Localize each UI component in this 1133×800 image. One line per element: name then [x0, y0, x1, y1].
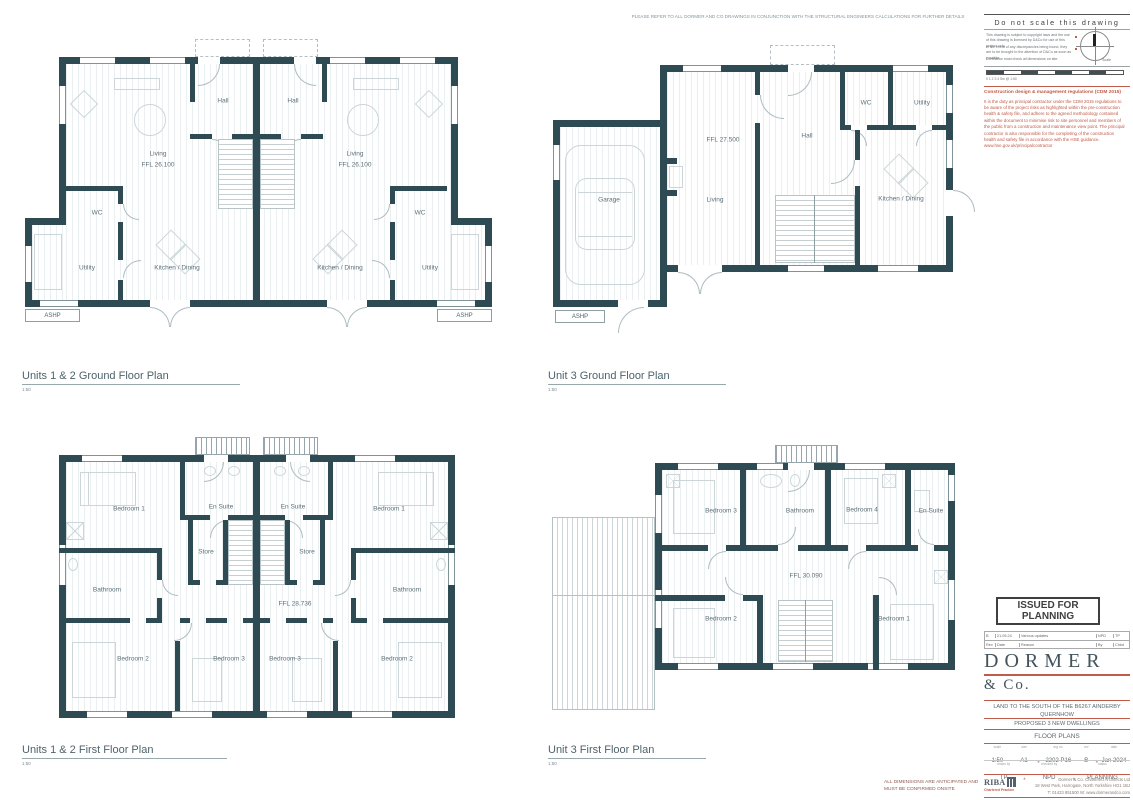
wall	[118, 280, 123, 300]
revision-table: B 21.05.24 Various updates NPD TP Rev Da…	[984, 631, 1130, 649]
north-needle	[1093, 34, 1096, 46]
wall	[59, 618, 130, 623]
date-label: date	[1098, 745, 1130, 749]
door-arc	[678, 272, 700, 294]
ashp-label: ASHP	[44, 313, 60, 319]
plan-scale: 1:50	[22, 761, 31, 766]
room-label-kitchen: Kitchen / Dining	[154, 265, 200, 272]
fireplace-wall	[667, 190, 677, 196]
stairs	[260, 139, 295, 209]
wall	[146, 618, 162, 623]
window	[946, 140, 953, 168]
window	[485, 246, 492, 282]
window	[87, 711, 127, 718]
plan-units12-first: Bedroom 1 En Suite En Suite Bedroom 1 St…	[22, 430, 492, 730]
door-arc	[150, 307, 170, 327]
plan-units12-ground: Hall Hall Living FFL 26.100 Living FFL 2…	[22, 38, 492, 328]
wall	[351, 548, 356, 580]
logo-rule	[984, 674, 1130, 676]
wall	[328, 455, 333, 515]
room-label-bathroom: Bathroom	[93, 587, 121, 594]
date-cell: 21.05.24	[996, 634, 1020, 638]
bed	[192, 658, 222, 702]
ashp-label: ASHP	[456, 313, 472, 319]
party-wall	[253, 57, 260, 307]
room-label-wc: WC	[415, 210, 426, 217]
room-label-bedroom4: Bedroom 4	[846, 507, 878, 514]
wall	[655, 595, 725, 601]
sofa	[353, 78, 399, 90]
practice-address: Dormer & Co. Chartered Architects Ltd 18…	[1035, 777, 1130, 796]
wall	[390, 222, 395, 260]
wall	[260, 618, 270, 623]
wall	[188, 520, 193, 585]
room-label-utility: Utility	[422, 265, 438, 272]
dimensions-note: Contractor must check all dimensions on …	[986, 57, 1072, 62]
balcony-railing	[263, 437, 318, 455]
stairs	[775, 195, 855, 263]
window	[788, 265, 824, 272]
accent-rule	[984, 718, 1130, 719]
drg-label: drg no.	[1040, 745, 1077, 749]
room-label-bedroom1: Bedroom 1	[373, 506, 405, 513]
window	[150, 57, 185, 64]
checked-label: checked by	[1026, 762, 1073, 766]
door-arc	[170, 307, 190, 327]
bed-pillow-line	[88, 472, 89, 506]
balcony-railing	[775, 445, 838, 463]
room-label-utility: Utility	[79, 265, 95, 272]
wall	[206, 618, 227, 623]
room-label-bedroom3: Bedroom 3	[269, 656, 301, 663]
window	[655, 495, 662, 533]
proposal-title: PROPOSED 3 NEW DWELLINGS	[987, 721, 1127, 727]
window	[845, 463, 885, 470]
window	[267, 711, 307, 718]
wall	[383, 618, 455, 623]
roof-divider	[552, 595, 655, 596]
window	[946, 85, 953, 113]
room-label-store: Store	[198, 549, 214, 556]
plan-title: Unit 3 Ground Floor Plan	[548, 370, 726, 385]
wall	[175, 641, 180, 711]
bed	[292, 658, 322, 702]
wall	[301, 134, 323, 139]
accent-rule	[984, 797, 1130, 798]
wall	[216, 580, 228, 585]
revision-header-row: Rev Date Reason By Chkd	[985, 641, 1129, 648]
wall	[855, 130, 860, 160]
window	[893, 65, 928, 72]
wall	[118, 186, 123, 204]
wall	[553, 120, 660, 127]
do-not-scale-title: Do not scale this drawing	[984, 18, 1130, 27]
plan-scale: 1:50	[548, 387, 557, 392]
wall	[873, 595, 879, 670]
window	[172, 711, 212, 718]
accent-rule	[984, 774, 1130, 775]
status-label: status	[1075, 762, 1130, 766]
wardrobe	[666, 474, 680, 488]
wall	[313, 580, 325, 585]
rev-head: Rev	[985, 643, 996, 647]
wall	[757, 600, 763, 670]
window	[40, 300, 78, 307]
do-not-scale-box: Do not scale this drawing This drawing i…	[984, 14, 1130, 88]
wall	[755, 123, 760, 272]
car-windscreen	[578, 192, 632, 193]
window	[355, 455, 395, 462]
chkd-head: Chkd	[1114, 643, 1129, 647]
rev-cell: B	[985, 634, 996, 638]
door-opening	[788, 463, 814, 470]
title-block-column: Do not scale this drawing This drawing i…	[984, 0, 1130, 800]
rule	[984, 14, 1130, 15]
wall	[59, 57, 66, 225]
door-opening	[327, 300, 367, 307]
room-label-hall: Hall	[217, 98, 228, 105]
wall	[59, 455, 66, 718]
canopy-outline	[770, 45, 835, 65]
room-label-hall: Hall	[287, 98, 298, 105]
wall	[303, 515, 333, 520]
door-opening	[618, 300, 648, 307]
window	[437, 300, 475, 307]
wall	[840, 65, 845, 130]
firm-address: 18 West Park, Harrogate, North Yorkshire…	[1035, 783, 1130, 789]
toilet	[68, 558, 78, 571]
cdm-regulations: Construction design & management regulat…	[984, 90, 1127, 150]
window	[683, 65, 721, 72]
scale-bar-caption: 0 1 2 3 4 5m @ 1:50	[986, 77, 1017, 81]
room-label-ensuite: En Suite	[281, 504, 306, 511]
room-label-bedroom1: Bedroom 1	[113, 506, 145, 513]
note-bullet	[1075, 36, 1077, 38]
issued-for-planning-label: ISSUED FOR PLANNING	[1003, 600, 1093, 623]
room-label-bathroom: Bathroom	[393, 587, 421, 594]
wall	[118, 222, 123, 260]
reason-cell: Various updates	[1020, 634, 1097, 638]
wall	[180, 455, 185, 515]
wall	[726, 545, 778, 551]
riba-block: RIBA Chartered Practice	[984, 777, 1016, 796]
room-label-wc: WC	[92, 210, 103, 217]
wall	[390, 186, 395, 204]
plan-title: Units 1 & 2 Ground Floor Plan	[22, 370, 240, 385]
window	[757, 463, 783, 470]
wardrobe	[934, 570, 948, 584]
window	[678, 663, 718, 670]
wall	[190, 57, 195, 102]
door-arc	[618, 307, 644, 333]
logo-line2: & Co.	[984, 677, 1130, 694]
issued-for-planning-stamp: ISSUED FOR PLANNING	[996, 597, 1100, 625]
wall	[243, 618, 253, 623]
door-opening	[198, 57, 220, 64]
accent-rule	[984, 729, 1130, 730]
revision-row: B 21.05.24 Various updates NPD TP	[985, 632, 1129, 641]
room-label-kitchen: Kitchen / Dining	[317, 265, 363, 272]
logo-line1: DORMER	[984, 650, 1130, 673]
wall	[351, 618, 367, 623]
ashp-label: ASHP	[572, 314, 588, 320]
door-opening	[150, 300, 190, 307]
firm-contact: T: 01423 851500 W: www.dormerandco.com	[1035, 790, 1130, 796]
wall	[660, 272, 667, 307]
ffl-label: FFL 26.100	[141, 162, 174, 169]
stair-divider	[805, 600, 806, 662]
room-label-living: Living	[150, 151, 167, 158]
room-label-utility: Utility	[914, 100, 930, 107]
room-label-bedroom2: Bedroom 2	[381, 656, 413, 663]
wall	[286, 618, 307, 623]
utility-counter	[34, 234, 62, 290]
size-label: size	[1011, 745, 1038, 749]
door-opening	[294, 57, 316, 64]
room-label-bedroom2: Bedroom 2	[705, 616, 737, 623]
room-label-bedroom1: Bedroom 1	[878, 616, 910, 623]
room-label-garage: Garage	[598, 197, 620, 204]
plan-title: Units 1 & 2 First Floor Plan	[22, 744, 227, 759]
bath	[760, 474, 782, 488]
north-crosshair-v	[1095, 27, 1096, 65]
wall	[322, 57, 327, 102]
room-label-store: Store	[299, 549, 315, 556]
room-label-living: Living	[707, 197, 724, 204]
car-rear-window	[578, 236, 632, 237]
wall	[740, 463, 746, 551]
bed	[398, 642, 442, 698]
scale-bar	[986, 70, 1124, 75]
wall	[188, 580, 200, 585]
wall	[391, 186, 447, 191]
wardrobe	[430, 522, 448, 540]
wall	[157, 548, 162, 580]
door-opening	[788, 65, 814, 72]
table-round	[134, 104, 166, 136]
wall	[320, 520, 325, 585]
fireplace-wall	[667, 158, 677, 164]
basin	[204, 466, 216, 476]
window	[352, 711, 392, 718]
wall	[905, 463, 911, 551]
wardrobe	[66, 522, 84, 540]
ffl-label: FFL 26.100	[338, 162, 371, 169]
room-label-bedroom2: Bedroom 2	[117, 656, 149, 663]
window	[878, 265, 918, 272]
wall	[798, 545, 848, 551]
date-head: Date	[996, 643, 1020, 647]
scale-label: scale	[984, 745, 1011, 749]
by-head: By	[1097, 643, 1114, 647]
wall	[934, 545, 955, 551]
window	[59, 86, 66, 124]
stairs	[218, 139, 253, 209]
wall	[285, 580, 297, 585]
wall	[285, 520, 290, 585]
balcony-railing	[195, 437, 250, 455]
drawing-title: FLOOR PLANS	[987, 733, 1127, 740]
door-arc	[953, 190, 975, 212]
wall	[390, 280, 395, 300]
rule	[984, 760, 1130, 761]
note-bullet	[1075, 48, 1077, 50]
wall	[755, 65, 760, 95]
wall	[855, 186, 860, 272]
wall	[66, 186, 122, 191]
wall	[333, 641, 338, 711]
project-title: LAND TO THE SOUTH OF THE B6267 AINDERBY …	[987, 703, 1127, 719]
ashp-tag: ASHP	[25, 309, 80, 322]
drawn-label: drawn by	[984, 762, 1023, 766]
wall	[180, 515, 210, 520]
plan-unit3-ground: Garage FFL 27.500 Living Hall WC Utility…	[548, 40, 978, 335]
window	[400, 57, 435, 64]
wall	[655, 545, 708, 551]
room-label-wc: WC	[861, 100, 872, 107]
plan-unit3-first: Bedroom 3 Bathroom Bedroom 4 En Suite FF…	[548, 440, 978, 740]
plan-title: Unit 3 First Floor Plan	[548, 744, 706, 759]
canopy-outline	[195, 39, 250, 57]
basin	[274, 466, 286, 476]
door-arc	[327, 307, 347, 327]
ffl-label: FFL 30.090	[789, 573, 822, 580]
door-opening	[678, 265, 722, 272]
scale-word: Scale	[1102, 58, 1111, 63]
bed	[890, 604, 934, 660]
riba-sub-label: Chartered Practice	[984, 788, 1016, 792]
riba-label: RIBA	[984, 777, 1005, 787]
window	[80, 57, 115, 64]
rule	[984, 29, 1130, 30]
door-opening	[946, 190, 953, 216]
wall	[660, 65, 667, 272]
table-round	[347, 104, 379, 136]
room-label-ensuite: En Suite	[209, 504, 234, 511]
flat-roof-hatch	[552, 517, 655, 710]
bed-pillow-line	[426, 472, 427, 506]
by-cell: NPD	[1097, 634, 1114, 638]
wall	[825, 463, 831, 551]
wall	[451, 57, 458, 225]
stove	[669, 166, 683, 188]
cdm-title: Construction design & management regulat…	[984, 90, 1127, 97]
window	[451, 86, 458, 124]
window	[82, 455, 122, 462]
basin	[298, 466, 310, 476]
wall	[888, 65, 893, 130]
room-label-hall: Hall	[801, 133, 812, 140]
canopy-outline	[263, 39, 318, 57]
car-cabin	[575, 178, 635, 250]
bed	[72, 642, 116, 698]
bed	[844, 478, 878, 524]
stairs	[228, 520, 253, 585]
window	[948, 580, 955, 620]
plan-scale: 1:50	[22, 387, 31, 392]
rev-label: rev	[1077, 745, 1096, 749]
accent-rule	[984, 86, 1130, 87]
wall	[351, 548, 455, 553]
dimensions-warning: ALL DIMENSIONS ARE ANTICIPATED AND MUST …	[884, 779, 982, 793]
room-label-bathroom: Bathroom	[786, 508, 814, 515]
window	[948, 475, 955, 501]
window	[773, 663, 813, 670]
ashp-tag: ASHP	[437, 309, 492, 322]
window	[25, 246, 32, 282]
ffl-label: FFL 28.736	[278, 601, 311, 608]
wardrobe	[882, 474, 896, 488]
room-label-living: Living	[347, 151, 364, 158]
cdm-body: It is the duty as principal contractor u…	[984, 99, 1127, 150]
door-opening	[204, 455, 228, 462]
utility-counter	[451, 234, 479, 290]
ashp-tag: ASHP	[555, 310, 605, 323]
window	[330, 57, 365, 64]
toilet	[790, 474, 800, 487]
toilet	[436, 558, 446, 571]
room-label-ensuite: En Suite	[919, 508, 944, 515]
door-arc	[700, 272, 722, 294]
wall	[59, 548, 162, 553]
door-arc	[347, 307, 367, 327]
party-wall	[253, 455, 260, 718]
room-label-kitchen: Kitchen / Dining	[878, 196, 924, 203]
practice-row: RIBA Chartered Practice Dormer & Co. Cha…	[984, 777, 1130, 796]
reason-head: Reason	[1020, 643, 1097, 647]
plan-scale: 1:50	[548, 761, 557, 766]
structural-note: PLEASE REFER TO ALL DORMER AND CO DRAWIN…	[622, 14, 974, 19]
accent-rule	[984, 700, 1130, 701]
stair-divider	[814, 195, 815, 263]
wall	[448, 455, 455, 718]
sofa	[114, 78, 160, 90]
stairs	[260, 520, 285, 585]
dormer-logo: DORMER & Co.	[984, 650, 1130, 694]
riba-portico-icon	[1007, 777, 1016, 787]
room-label-bedroom3: Bedroom 3	[213, 656, 245, 663]
window	[553, 145, 560, 180]
basin	[228, 466, 240, 476]
drawing-sheet: PLEASE REFER TO ALL DORMER AND CO DRAWIN…	[0, 0, 1133, 800]
wall	[190, 134, 212, 139]
accent-rule	[984, 743, 1130, 744]
ffl-label: FFL 27.500	[706, 137, 739, 144]
door-opening	[286, 455, 310, 462]
room-label-bedroom3: Bedroom 3	[705, 508, 737, 515]
chkd-cell: TP	[1114, 634, 1129, 638]
window	[678, 463, 718, 470]
rule	[984, 66, 1130, 67]
